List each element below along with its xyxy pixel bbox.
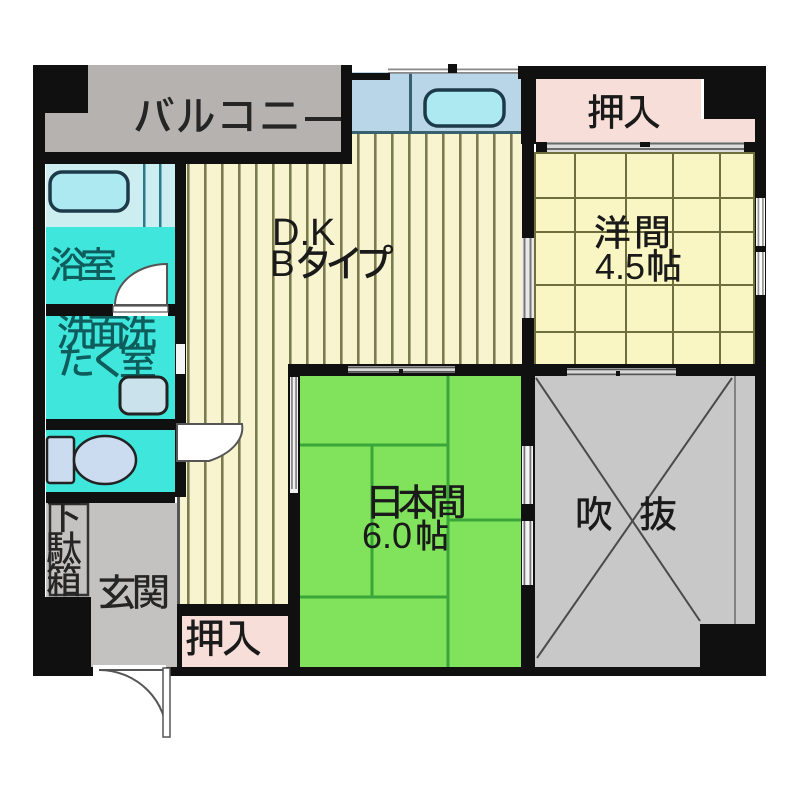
svg-text:4.5: 4.5: [595, 246, 645, 287]
svg-text:B: B: [270, 243, 295, 284]
svg-text:6.0: 6.0: [362, 515, 412, 556]
